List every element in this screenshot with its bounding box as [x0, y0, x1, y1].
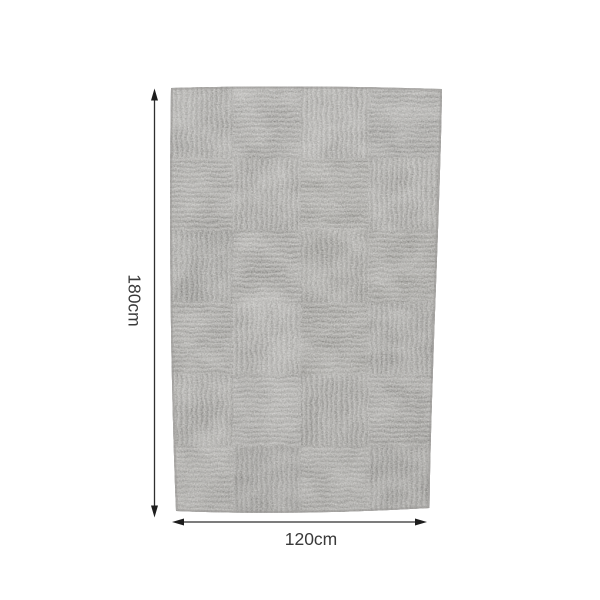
svg-text:180cm: 180cm: [125, 274, 145, 327]
svg-text:120cm: 120cm: [285, 529, 338, 549]
